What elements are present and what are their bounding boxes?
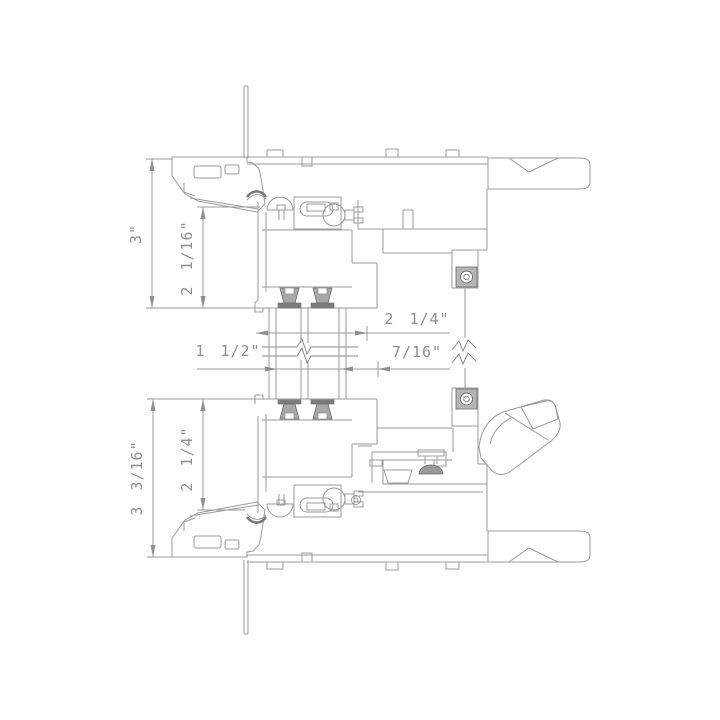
top-exterior-trim xyxy=(172,157,265,212)
bottom-bead-tab xyxy=(307,503,325,510)
section-drawing: 3" 2 1/16" 2 1/4" 1 1/2" 7/16" 3 3/16" 2… xyxy=(0,0,720,720)
top-nail-fin xyxy=(244,86,248,158)
arrowhead xyxy=(150,296,155,308)
dim-label-bottom-frame-height: 3 3/16" xyxy=(128,440,146,515)
frame-tab xyxy=(386,149,398,157)
arrowhead xyxy=(201,399,206,411)
extension-lines xyxy=(146,159,378,557)
frame-tab xyxy=(386,562,398,570)
bottom-right-bar xyxy=(488,531,590,562)
arrowhead xyxy=(256,331,268,336)
frame-tab xyxy=(446,150,459,157)
roller-icon xyxy=(354,498,358,502)
lock-bracket-flange xyxy=(434,460,446,466)
setting-block xyxy=(311,303,334,308)
bulb-screw xyxy=(279,494,284,504)
top-keyhole-gasket xyxy=(323,204,345,226)
cad-canvas: 3" 2 1/16" 2 1/4" 1 1/2" 7/16" 3 3/16" 2… xyxy=(0,0,720,720)
top-bead-tab xyxy=(307,204,325,211)
arrowhead xyxy=(150,159,155,171)
top-plug xyxy=(345,210,354,220)
head-frame-body xyxy=(358,189,487,253)
frame-tab xyxy=(267,562,283,569)
arrowhead xyxy=(355,331,367,336)
dim-label-top-frame-height: 3" xyxy=(127,224,145,244)
setting-block xyxy=(311,399,334,404)
top-frame-assembly xyxy=(172,86,590,312)
trim-slot xyxy=(225,540,239,549)
top-bar-notch xyxy=(509,158,558,172)
frame-clip xyxy=(302,157,312,166)
dim-label-bottom-sash-height: 2 1/4" xyxy=(178,426,196,491)
handle-inner-lines xyxy=(490,413,548,444)
wedge-gasket-notch xyxy=(285,413,294,419)
setting-block xyxy=(278,399,301,404)
screw-head-icon xyxy=(461,393,473,405)
frame-tab xyxy=(267,150,283,157)
trim-slot xyxy=(194,536,221,548)
dim-label-reveal-offset: 7/16" xyxy=(392,343,442,361)
head-frame-top-edge xyxy=(247,157,488,164)
arrowhead xyxy=(201,207,206,219)
dim-label-top-sash-height: 2 1/16" xyxy=(178,220,196,295)
wedge-gasket-notch xyxy=(318,288,327,294)
dim-label-glazing-thickness: 1 1/2" xyxy=(195,342,260,360)
lock-hardware xyxy=(352,428,484,505)
wedge-gasket-notch xyxy=(318,413,327,419)
operator-handle xyxy=(479,400,560,475)
arrowhead xyxy=(151,399,156,411)
setting-block xyxy=(278,303,301,308)
bottom-frame-assembly xyxy=(172,388,590,634)
dimension-annotations: 3" 2 1/16" 2 1/4" 1 1/2" 7/16" 3 3/16" 2… xyxy=(127,159,476,557)
arrowhead xyxy=(378,367,390,372)
break-mark xyxy=(452,353,476,364)
handle-outline xyxy=(479,400,560,475)
arrowhead xyxy=(201,296,206,308)
sill-frame-bottom-edge xyxy=(247,555,488,562)
wedge-gasket-notch xyxy=(285,288,294,294)
arrowhead xyxy=(265,367,277,372)
arrowhead xyxy=(341,367,353,372)
frame-clip xyxy=(302,553,312,562)
frame-tab xyxy=(446,562,459,569)
arrowhead xyxy=(201,498,206,510)
fastener-cap xyxy=(418,450,444,456)
bulb-screw xyxy=(277,205,285,210)
top-bulb-gasket xyxy=(267,197,293,210)
arrowhead xyxy=(151,545,156,557)
bottom-keyhole-gasket xyxy=(323,488,345,510)
break-mark xyxy=(452,340,476,351)
screw-head-icon xyxy=(461,271,473,283)
bottom-bulb-gasket xyxy=(267,504,293,517)
bottom-bar-notch xyxy=(509,548,558,562)
sill-frame-body xyxy=(383,426,487,531)
roller-icon xyxy=(352,496,361,505)
bottom-nail-fin xyxy=(244,560,248,634)
trim-slot xyxy=(225,165,239,174)
top-right-bar xyxy=(488,158,590,189)
dim-label-sash-depth: 2 1/4" xyxy=(384,310,449,328)
bulb-screw xyxy=(279,210,284,220)
lock-block xyxy=(384,470,412,483)
trim-slot xyxy=(194,166,221,178)
